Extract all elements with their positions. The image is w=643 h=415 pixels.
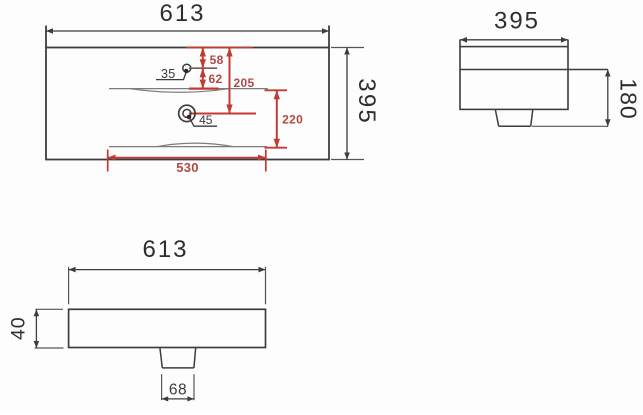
svg-text:40: 40 — [8, 316, 30, 340]
svg-text:58: 58 — [210, 53, 224, 67]
svg-text:68: 68 — [169, 382, 187, 399]
svg-text:35: 35 — [161, 67, 176, 81]
svg-text:613: 613 — [159, 0, 205, 27]
svg-text:530: 530 — [176, 160, 199, 175]
svg-text:205: 205 — [234, 76, 255, 90]
svg-text:395: 395 — [353, 78, 380, 125]
svg-text:45: 45 — [199, 113, 213, 127]
svg-text:180: 180 — [616, 78, 642, 119]
svg-text:62: 62 — [209, 72, 223, 86]
svg-text:395: 395 — [494, 8, 540, 35]
svg-text:220: 220 — [282, 113, 303, 127]
svg-text:613: 613 — [142, 236, 188, 263]
